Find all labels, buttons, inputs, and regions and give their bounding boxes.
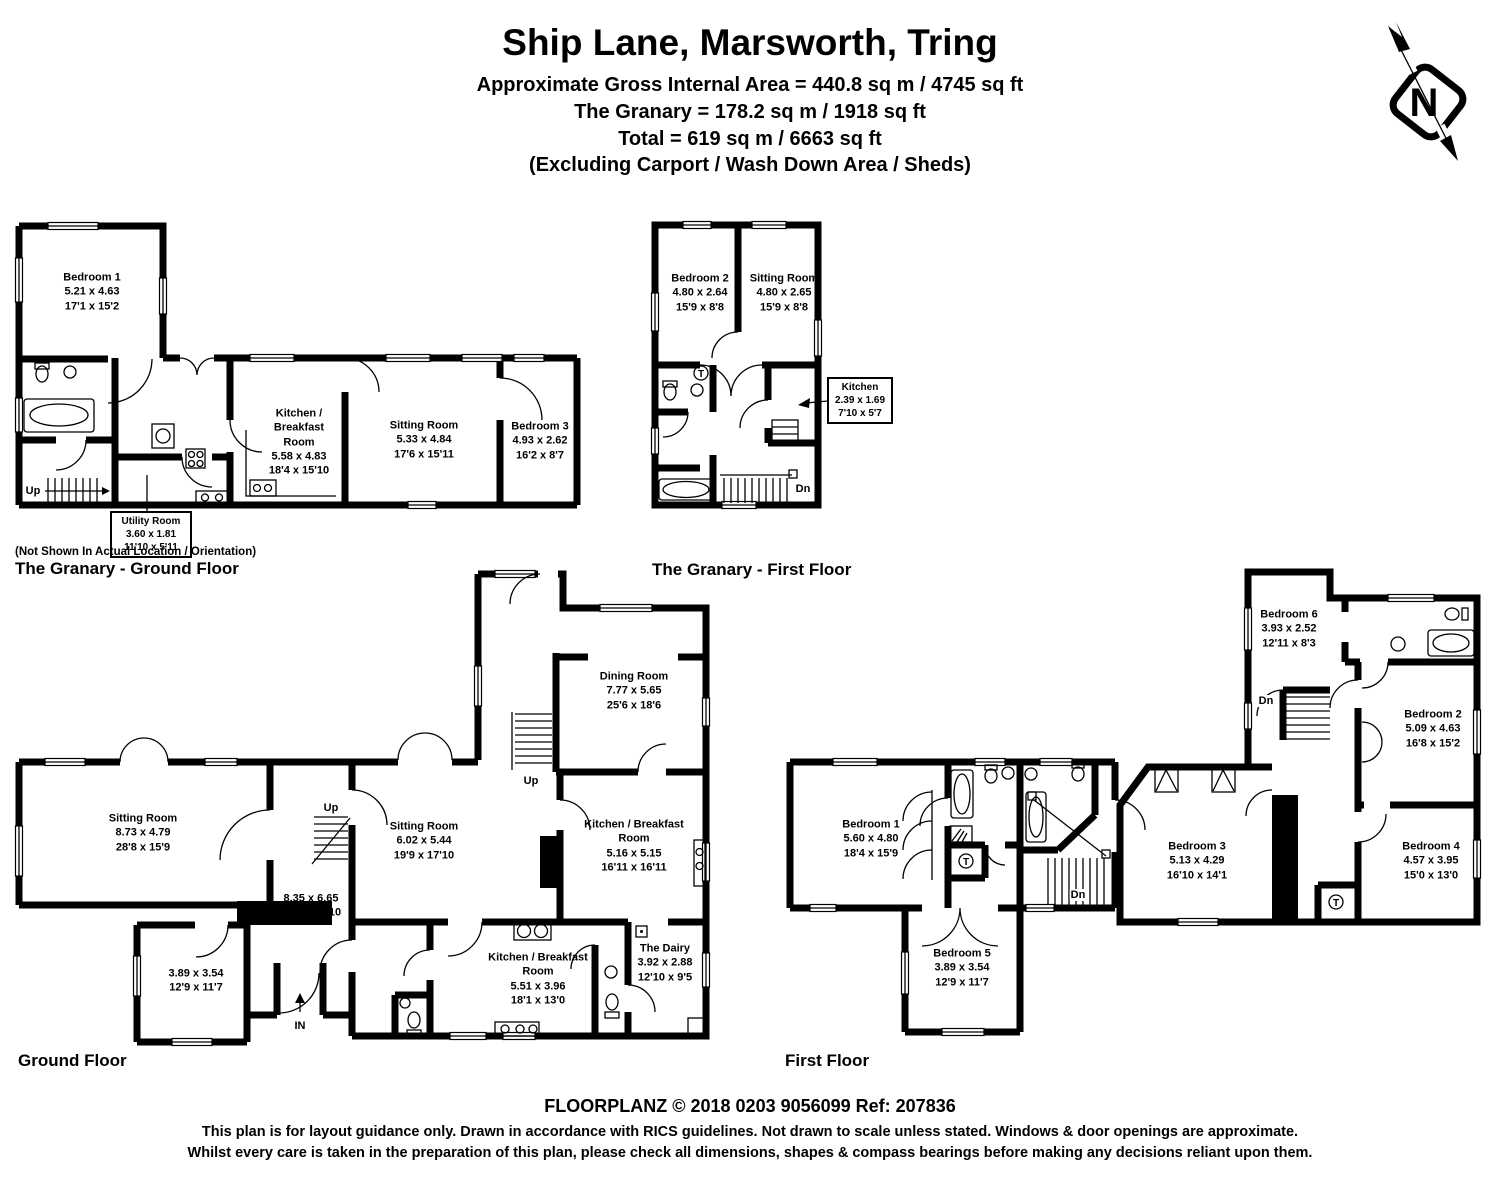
room-size-imperial: 12'11 x 8'3 [1244, 636, 1334, 650]
room-name: Kitchen / Breakfast Room [577, 817, 692, 846]
room-label-ff-bedroom-6: Bedroom 6 3.93 x 2.52 12'11 x 8'3 [1244, 608, 1334, 651]
room-size-imperial: 18'4 x 15'10 [259, 463, 339, 477]
stairs-icon [312, 817, 350, 864]
room-label-granary-kitchen-breakfast: Kitchen / Breakfast Room 5.58 x 4.83 18'… [259, 406, 339, 477]
room-name: Sitting Room [374, 419, 474, 433]
bath-icon [24, 399, 94, 432]
room-size-imperial: 16'10 x 14'1 [1145, 868, 1250, 882]
ground-floor-caption: Ground Floor [18, 1051, 127, 1071]
room-size-metric: 3.92 x 2.88 [623, 956, 708, 970]
room-size-metric: 3.60 x 1.81 [114, 528, 188, 541]
hob-icon [186, 449, 205, 468]
room-size-metric: 3.93 x 2.52 [1244, 622, 1334, 636]
room-size-imperial: 7'10 x 5'7 [831, 407, 889, 420]
room-size-imperial: 12'10 x 9'5 [623, 970, 708, 984]
first-floor-plan: T T [790, 572, 1481, 1036]
room-name: Kitchen [831, 381, 889, 394]
tank-letter: T [698, 369, 704, 380]
tank-icon: T [959, 854, 973, 868]
toilet-icon [35, 363, 49, 382]
stairs-icon [1285, 697, 1330, 739]
room-name: Bedroom 2 [1386, 708, 1481, 722]
toilet-icon [985, 765, 997, 783]
room-name: Bedroom 6 [1244, 608, 1334, 622]
footer-disclaimer-1: This plan is for layout guidance only. D… [0, 1124, 1500, 1140]
ground-floor-plan [16, 571, 710, 1046]
stairs-up-label: Up [323, 802, 340, 814]
toilet-icon [663, 381, 677, 400]
room-size-imperial: 16'8 x 15'2 [1386, 736, 1481, 750]
doors [120, 574, 666, 1013]
room-size-imperial: 19'9 x 17'10 [374, 848, 474, 862]
room-name: Bedroom 3 [497, 420, 583, 434]
room-size-imperial: 15'9 x 8'8 [659, 300, 741, 314]
toilet-icon [1072, 763, 1084, 781]
room-size-metric: 5.33 x 4.84 [374, 433, 474, 447]
room-size-imperial: 28'8 x 15'9 [93, 840, 193, 854]
entrance-in-label: IN [294, 1020, 307, 1032]
room-label-gf-dairy: The Dairy 3.92 x 2.88 12'10 x 9'5 [623, 942, 708, 985]
room-size-metric: 5.13 x 4.29 [1145, 854, 1250, 868]
basin-icon [1002, 767, 1014, 779]
stairs-dn-label: Dn [1070, 889, 1087, 901]
room-label-ff-bedroom-1: Bedroom 1 5.60 x 4.80 18'4 x 15'9 [821, 818, 921, 861]
footer-disclaimer-2: Whilst every care is taken in the prepar… [0, 1145, 1500, 1161]
room-label-ff-bedroom-5: Bedroom 5 3.89 x 3.54 12'9 x 11'7 [912, 947, 1012, 990]
room-label-gf-sitting-room-middle: Sitting Room 6.02 x 5.44 19'9 x 17'10 [374, 820, 474, 863]
room-label-granary-bedroom-3: Bedroom 3 4.93 x 2.62 16'2 x 8'7 [497, 420, 583, 463]
room-label-ff-bedroom-3: Bedroom 3 5.13 x 4.29 16'10 x 14'1 [1145, 840, 1250, 883]
bath-icon [951, 770, 973, 818]
room-size-imperial: 18'1 x 13'0 [481, 993, 596, 1007]
room-size-metric: 4.93 x 2.62 [497, 434, 583, 448]
room-size-metric: 2.39 x 1.69 [831, 394, 889, 407]
stairs-dn-label: Dn [795, 483, 812, 495]
basin-icon [691, 384, 703, 396]
windows [810, 595, 1481, 1036]
room-size-metric: 5.21 x 4.63 [47, 285, 137, 299]
room-size-imperial: 17'6 x 15'11 [374, 447, 474, 461]
solid-wall [1272, 795, 1298, 922]
stairs-icon [720, 470, 797, 503]
room-size-metric: 8.73 x 4.79 [93, 826, 193, 840]
room-name: The Dairy [623, 942, 708, 956]
stairs-up-label: Up [523, 775, 540, 787]
room-name: Sitting Room [374, 820, 474, 834]
room-size-metric: 3.89 x 3.54 [912, 961, 1012, 975]
room-size-imperial: 15'0 x 13'0 [1384, 868, 1479, 882]
north-fletching-icon [1388, 22, 1410, 52]
granary-first-caption: The Granary - First Floor [652, 560, 851, 580]
bath-icon [1428, 630, 1474, 656]
room-size-imperial: 16'2 x 8'7 [497, 448, 583, 462]
room-name: Bedroom 1 [47, 271, 137, 285]
room-size-metric: 4.80 x 2.65 [743, 286, 825, 300]
kitchen-label-leader [798, 398, 828, 408]
granary-first-floor-plan: T [652, 222, 829, 509]
room-size-imperial: 16'11 x 16'11 [577, 860, 692, 874]
room-label-gf-kitchen-breakfast-rear: Kitchen / Breakfast Room 5.51 x 3.96 18'… [481, 950, 596, 1007]
tank-icon: T [1329, 895, 1343, 909]
plans-linework: N [0, 0, 1500, 1177]
room-size-imperial: 25'6 x 18'6 [579, 698, 689, 712]
room-size-imperial: 17'1 x 15'2 [47, 299, 137, 313]
toilet-icon [400, 998, 421, 1036]
room-name: Sitting Room [93, 812, 193, 826]
room-name: Dining Room [579, 670, 689, 684]
room-label-granary-ff-sitting-room: Sitting Room 4.80 x 2.65 15'9 x 8'8 [743, 272, 825, 315]
room-size-metric: 3.89 x 3.54 [151, 967, 241, 981]
basin-icon [1391, 637, 1405, 651]
room-size-metric: 8.35 x 6.65 [264, 892, 359, 906]
toilet-icon [1445, 608, 1468, 620]
room-name: Bedroom 4 [1384, 840, 1479, 854]
room-label-ff-bedroom-4: Bedroom 4 4.57 x 3.95 15'0 x 13'0 [1384, 840, 1479, 883]
stairs-dn-label: Dn [1258, 695, 1275, 707]
oven-icon [772, 420, 798, 442]
shower-icon [950, 826, 972, 842]
room-label-ff-bedroom-2: Bedroom 2 5.09 x 4.63 16'8 x 15'2 [1386, 708, 1481, 751]
bath-icon [659, 479, 714, 500]
chimney-breast [540, 836, 560, 888]
tank-letter: T [1333, 898, 1339, 909]
room-size-imperial: 12'9 x 11'7 [912, 975, 1012, 989]
room-name: Bedroom 3 [1145, 840, 1250, 854]
room-name: Bedroom 2 [659, 272, 741, 286]
granary-ground-note: (Not Shown In Actual Location / Orientat… [15, 546, 256, 558]
hob-icon [514, 923, 551, 940]
room-size-metric: 5.51 x 3.96 [481, 979, 596, 993]
room-label-granary-ff-kitchen: Kitchen 2.39 x 1.69 7'10 x 5'7 [827, 377, 893, 424]
room-size-imperial: 27'5 x 21'10 [264, 906, 359, 920]
basin-icon [1025, 768, 1037, 780]
room-size-metric: 5.58 x 4.83 [259, 449, 339, 463]
basin-icon [64, 366, 76, 378]
room-size-imperial: 12'9 x 11'7 [151, 981, 241, 995]
room-size-imperial: 18'4 x 15'9 [821, 846, 921, 860]
toilet-icon [605, 966, 619, 1018]
room-size-metric: 6.02 x 5.44 [374, 834, 474, 848]
stairs-icon [45, 478, 110, 503]
room-size-metric: 5.60 x 4.80 [821, 832, 921, 846]
stairs-icon [512, 712, 552, 770]
north-letter: N [1410, 81, 1439, 125]
room-name: Kitchen / Breakfast Room [259, 406, 339, 449]
walls [19, 574, 706, 1042]
north-compass: N [1388, 22, 1467, 161]
room-size-imperial: 15'9 x 8'8 [743, 300, 825, 314]
stairs-up-label: Up [25, 485, 42, 497]
room-name: Utility Room [114, 515, 188, 528]
room-name: Bedroom 5 [912, 947, 1012, 961]
room-label-gf-family-room: 3.89 x 3.54 12'9 x 11'7 [151, 967, 241, 996]
room-label-granary-sitting-room: Sitting Room 5.33 x 4.84 17'6 x 15'11 [374, 419, 474, 462]
room-label-gf-dining-room: Dining Room 7.77 x 5.65 25'6 x 18'6 [579, 670, 689, 713]
granary-ground-caption: The Granary - Ground Floor [15, 559, 239, 579]
room-label-granary-bedroom-1: Bedroom 1 5.21 x 4.63 17'1 x 15'2 [47, 271, 137, 314]
tank-icon: T [694, 366, 708, 380]
room-size-metric: 7.77 x 5.65 [579, 684, 689, 698]
wardrobe-icon [1155, 768, 1235, 792]
room-size-metric: 4.80 x 2.64 [659, 286, 741, 300]
room-label-gf-hall: 8.35 x 6.65 27'5 x 21'10 [264, 892, 359, 921]
room-name: Sitting Room [743, 272, 825, 286]
tank-letter: T [963, 857, 969, 868]
room-size-metric: 5.09 x 4.63 [1386, 722, 1481, 736]
walls [655, 225, 818, 505]
room-name: Kitchen / Breakfast Room [481, 950, 596, 979]
room-label-granary-ff-bedroom-2: Bedroom 2 4.80 x 2.64 15'9 x 8'8 [659, 272, 741, 315]
room-label-gf-kitchen-breakfast-main: Kitchen / Breakfast Room 5.16 x 5.15 16'… [577, 817, 692, 874]
room-name: Bedroom 1 [821, 818, 921, 832]
room-size-metric: 5.16 x 5.15 [577, 846, 692, 860]
walls [790, 572, 1477, 1032]
first-floor-caption: First Floor [785, 1051, 869, 1071]
footer-brand-line: FLOORPLANZ © 2018 0203 9056099 Ref: 2078… [0, 1096, 1500, 1117]
room-size-metric: 4.57 x 3.95 [1384, 854, 1479, 868]
washer-icon [152, 424, 174, 448]
room-label-gf-sitting-room-west: Sitting Room 8.73 x 4.79 28'8 x 15'9 [93, 812, 193, 855]
floorplan-page: Ship Lane, Marsworth, Tring Approximate … [0, 0, 1500, 1177]
